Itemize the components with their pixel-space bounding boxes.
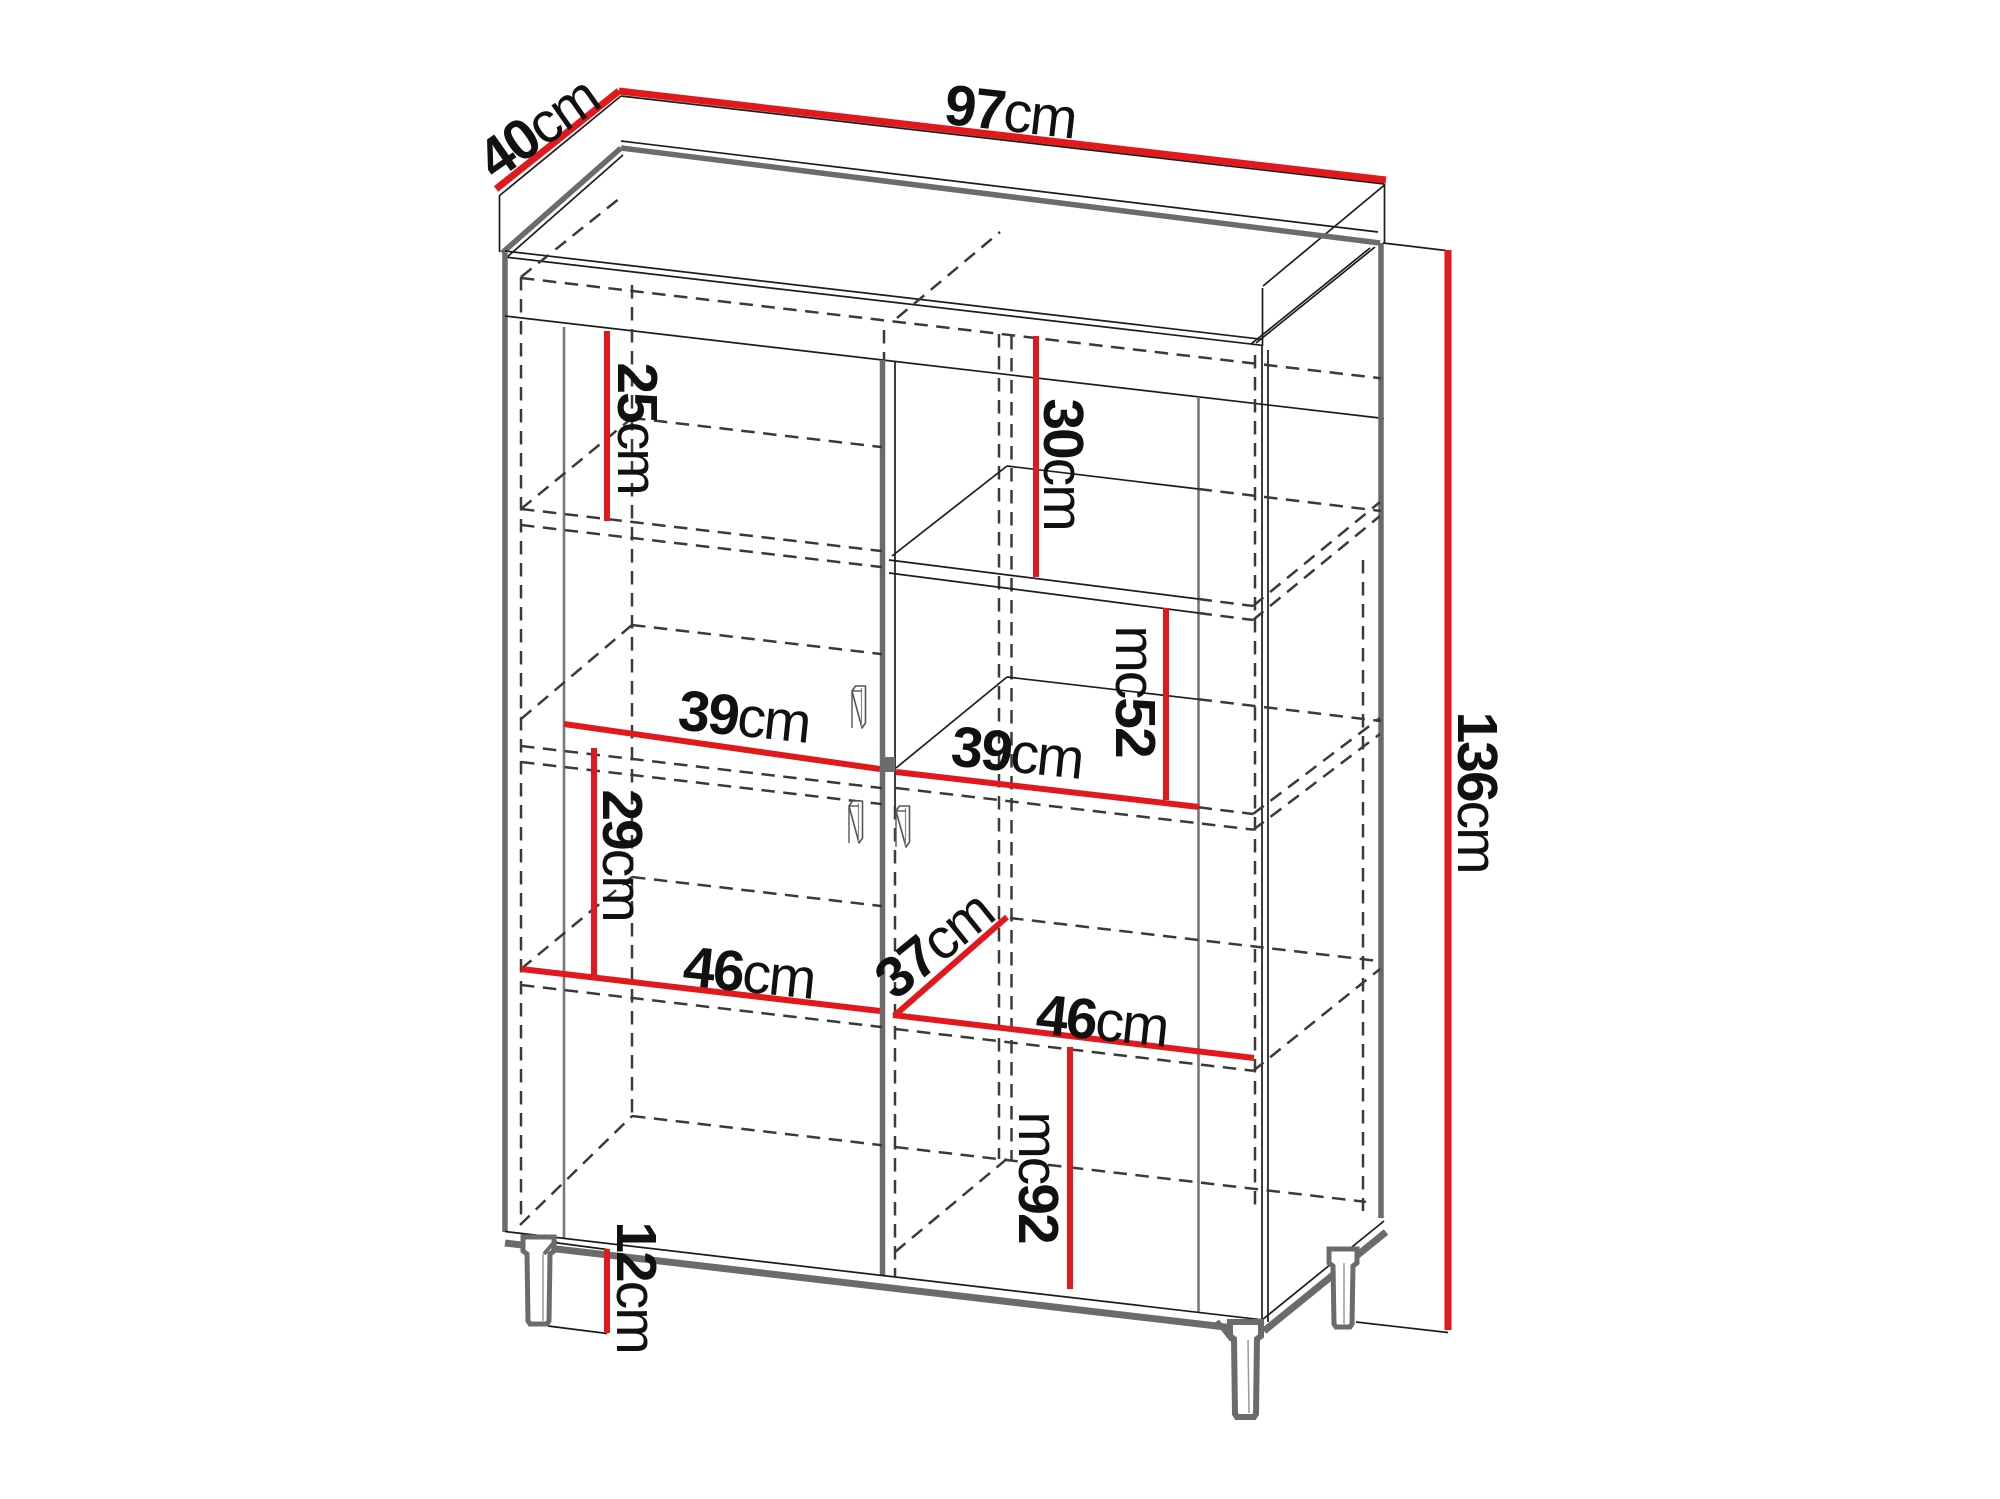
svg-text:39cm: 39cm: [948, 714, 1085, 791]
svg-text:29cm: 29cm: [590, 789, 654, 920]
svg-text:46cm: 46cm: [1033, 982, 1170, 1059]
svg-text:46cm: 46cm: [680, 934, 817, 1011]
svg-text:30cm: 30cm: [1031, 398, 1095, 529]
svg-text:136cm: 136cm: [1445, 711, 1509, 872]
svg-text:12cm: 12cm: [604, 1221, 668, 1352]
svg-text:39cm: 39cm: [675, 678, 812, 755]
svg-text:mc52: mc52: [1103, 625, 1167, 757]
svg-text:25cm: 25cm: [605, 362, 669, 493]
svg-text:mc92: mc92: [1006, 1111, 1070, 1243]
